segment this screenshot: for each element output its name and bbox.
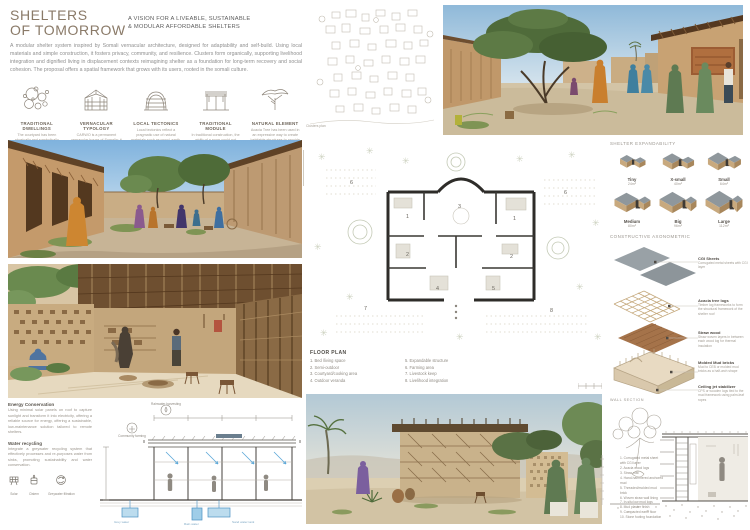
svg-text:✳: ✳ [318,152,326,162]
veranda-render [8,264,302,398]
large-axon-icon [702,190,746,214]
expandability-heading: SHELTER EXPANDABILITY [610,141,746,146]
svg-text:✳: ✳ [366,146,374,156]
floor-plan-drawing: ✳✳✳✳ ✳✳✳✳ ✳✳✳✳ [306,140,606,348]
traditional-module-icon [199,84,233,114]
svg-text:1: 1 [513,216,516,222]
scale-ruler-vertical [303,150,304,186]
svg-text:8: 8 [550,308,553,314]
tank-label-rain: Rain water [184,522,199,526]
solar-icon [8,474,20,486]
svg-text:3: 3 [458,204,461,210]
site-plan-caption: Clusters plan [306,124,326,128]
natural-element-icon [258,84,292,114]
traditional-dwellings-icon [20,84,54,114]
section-icon-label-farming: Community farming [114,434,150,438]
svg-text:2: 2 [510,254,513,260]
axonometric-heading: CONSTRUCTIVE AXONOMETRIC [610,234,748,239]
layer-label-cgi: CGI Sheets Corrugated metal sheets with … [698,256,748,270]
floor-plan-panel: ✳✳✳✳ ✳✳✳✳ ✳✳✳✳ [306,140,606,348]
constructive-axonometric-section: CONSTRUCTIVE AXONOMETRIC [610,234,748,396]
legend-item: 5. Expandable structure [405,358,490,363]
hero-render-image [443,5,743,135]
svg-text:2: 2 [406,252,409,258]
shelter-size-tiny: Tiny 24m² [610,150,654,186]
veranda-render-image [8,264,302,398]
subtitle: A VISION FOR A LIVEABLE, SUSTAINABLE & M… [128,16,288,32]
svg-text:5: 5 [492,286,495,292]
street-render [8,140,302,258]
svg-text:✳: ✳ [456,332,464,342]
shelter-size-xsmall: X-small 40m² [656,150,700,186]
svg-text:✳: ✳ [516,154,524,164]
section-icon-label-rainwater: Rainwater harvesting [148,402,184,406]
technical-section-panel: Grey water Rain water Sand water tank Ra… [96,402,302,526]
scale-bar [578,382,602,390]
svg-text:6: 6 [564,190,567,196]
wall-section-list: 1. Corrugated metal sheet with CGI layer… [620,456,664,520]
svg-text:✳: ✳ [314,242,322,252]
big-axon-icon [657,190,699,214]
svg-text:✳: ✳ [568,150,576,160]
layer-label-mud: Molded Mud bricks Mud to CEB or molded m… [698,360,748,374]
shelter-size-big: Big 96m² [656,190,700,228]
subtitle-line1: A VISION FOR A LIVEABLE, SUSTAINABLE [128,16,288,24]
svg-text:6: 6 [350,180,353,186]
svg-text:1: 1 [406,214,409,220]
exterior-render [306,394,602,524]
legend-item: 6. Farming area [405,365,490,370]
cistern-item: Cistern [28,473,40,496]
medium-axon-icon [613,190,651,214]
energy-text: Using minimal solar panels on roof to ca… [8,408,92,436]
layer-label-straw: Straw wood Straw woven layers in between… [698,330,748,348]
expandability-section: SHELTER EXPANDABILITY Tiny 24m² X-small [610,141,746,228]
svg-text:✳: ✳ [576,282,584,292]
svg-text:✳: ✳ [592,218,600,228]
vertical-ruler [599,455,605,505]
layer-label-logs: Acacia tree logs Timber log frameworks t… [698,298,748,316]
svg-text:✳: ✳ [346,292,354,302]
legend-item: 1. Bed /living space [310,358,395,363]
svg-text:4: 4 [436,286,439,292]
water-title: Water recycling [8,441,92,446]
exterior-render-image [306,394,602,524]
legend-item: 8. Livelihood integration [405,378,490,383]
site-plan-sketch: ​ [302,4,440,134]
sustainability-section: Energy Conservation Using minimal solar … [8,402,92,496]
site-plan-panel: ​ Clusters plan [302,4,440,134]
hero-render [443,5,743,135]
tiny-axon-icon [617,150,647,172]
street-render-image [8,140,302,258]
local-tectonics-icon [139,84,173,114]
solar-item: Solar [8,473,20,496]
svg-text:✳: ✳ [320,328,328,338]
small-axon-icon [706,150,742,172]
header: SHELTERS OF TOMORROW A VISION FOR A LIVE… [10,8,302,74]
legend-item: 4. Outdoor veranda [310,378,395,383]
wall-section-panel: WALL SECTION [610,398,748,528]
legend-item: 7. Livestock keep [405,371,490,376]
wall-section-heading: WALL SECTION [610,398,748,402]
legend-item: 2. Semi-outdoor [310,365,395,370]
svg-text:7: 7 [364,306,367,312]
svg-text:✳: ✳ [594,332,602,342]
floor-plan-legend: FLOOR PLAN 1. Bed /living space 5. Expan… [310,350,490,383]
legend-item: 3. Courtyard/cooking area [310,371,395,376]
presentation-board: SHELTERS OF TOMORROW A VISION FOR A LIVE… [0,0,750,530]
greywater-item: Greywater filtration [48,473,75,496]
subtitle-line2: & MODULAR AFFORDABLE SHELTERS [128,24,288,32]
xsmall-axon-icon [661,150,695,172]
vernacular-typology-icon [79,84,113,114]
technical-section-drawing [96,402,302,526]
svg-text:✳: ✳ [402,156,410,166]
shelter-size-large: Large 112m² [702,190,746,228]
floor-plan-heading: FLOOR PLAN [310,350,490,356]
water-text: Integrate a greywater recycling system t… [8,447,92,469]
tank-label-sand: Sand water tank [232,520,254,524]
energy-title: Energy Conservation [8,402,92,407]
greywater-filtration-icon [55,474,67,486]
intro-paragraph: A modular shelter system inspired by Som… [10,43,302,74]
tank-label-grey: Grey water [114,520,129,524]
shelter-size-small: Small 64m² [702,150,746,186]
shelter-size-medium: Medium 80m² [610,190,654,228]
exploded-axon-drawing [610,242,700,394]
cistern-icon [28,474,40,486]
